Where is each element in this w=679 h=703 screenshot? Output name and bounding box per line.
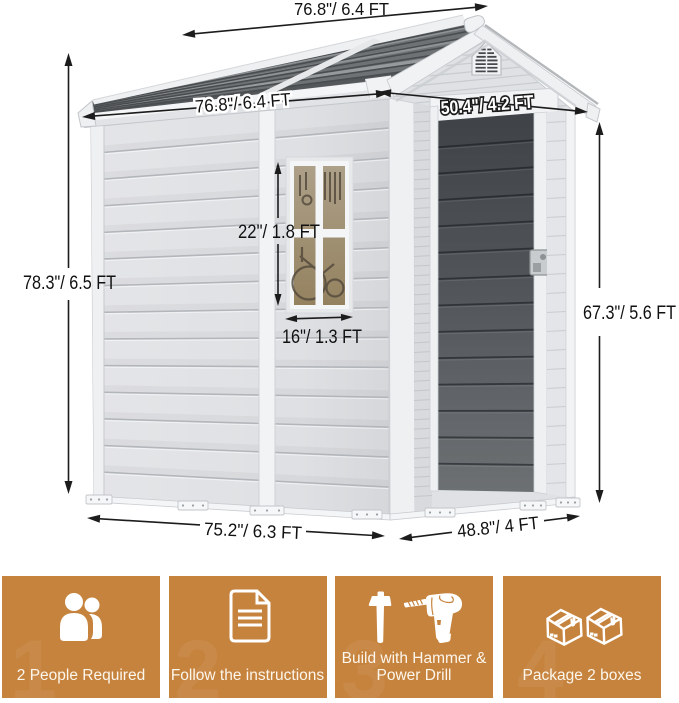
- svg-text:48.8"/ 4 FT: 48.8"/ 4 FT: [456, 513, 540, 541]
- svg-text:75.2"/ 6.3 FT: 75.2"/ 6.3 FT: [204, 519, 303, 543]
- svg-text:76.8"/ 6.4 FT: 76.8"/ 6.4 FT: [294, 0, 389, 19]
- svg-text:22"/ 1.8 FT: 22"/ 1.8 FT: [238, 222, 320, 243]
- svg-text:16"/ 1.3 FT: 16"/ 1.3 FT: [282, 327, 362, 348]
- svg-text:67.3"/ 5.6 FT: 67.3"/ 5.6 FT: [583, 302, 676, 324]
- svg-text:78.3"/ 6.5 FT: 78.3"/ 6.5 FT: [23, 273, 116, 294]
